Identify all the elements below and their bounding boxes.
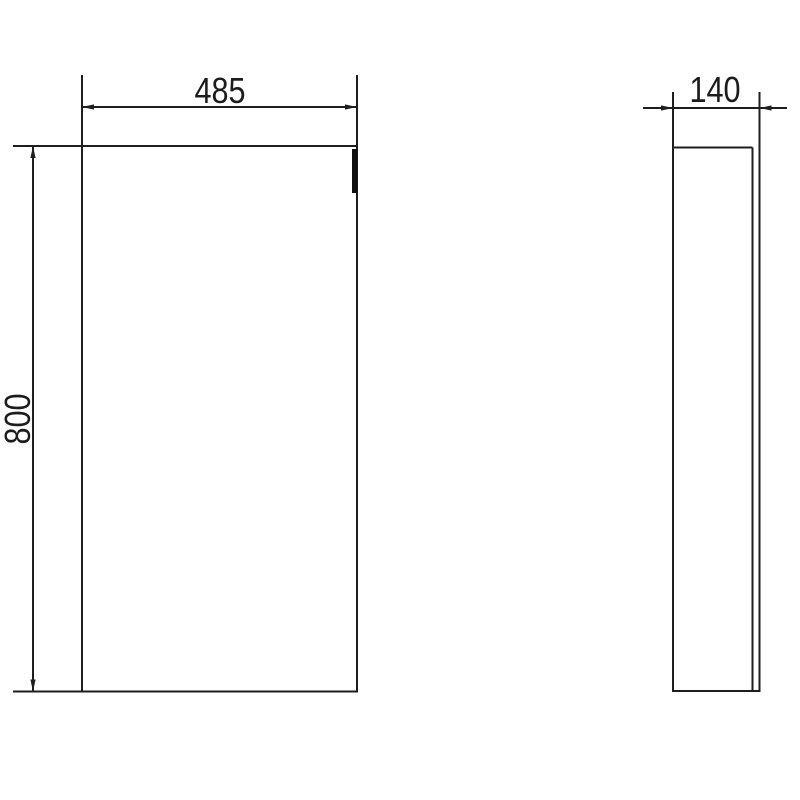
height-dim-arrow-up: [30, 146, 35, 158]
width-dimension-label: 485: [194, 73, 245, 109]
depth-dim-arrow-left: [661, 105, 673, 110]
door-handle: [352, 149, 358, 193]
depth-dim-arrow-right: [760, 105, 772, 110]
height-dim-arrow-down: [30, 680, 35, 692]
height-dimension-label: 800: [0, 393, 36, 444]
width-dim-arrow-left: [82, 104, 94, 109]
drawing-canvas: [0, 0, 800, 800]
front-view-outline: [82, 146, 357, 692]
depth-dimension-label: 140: [689, 72, 740, 108]
width-dim-arrow-right: [345, 104, 357, 109]
technical-drawing: 485 140 800: [0, 0, 800, 800]
